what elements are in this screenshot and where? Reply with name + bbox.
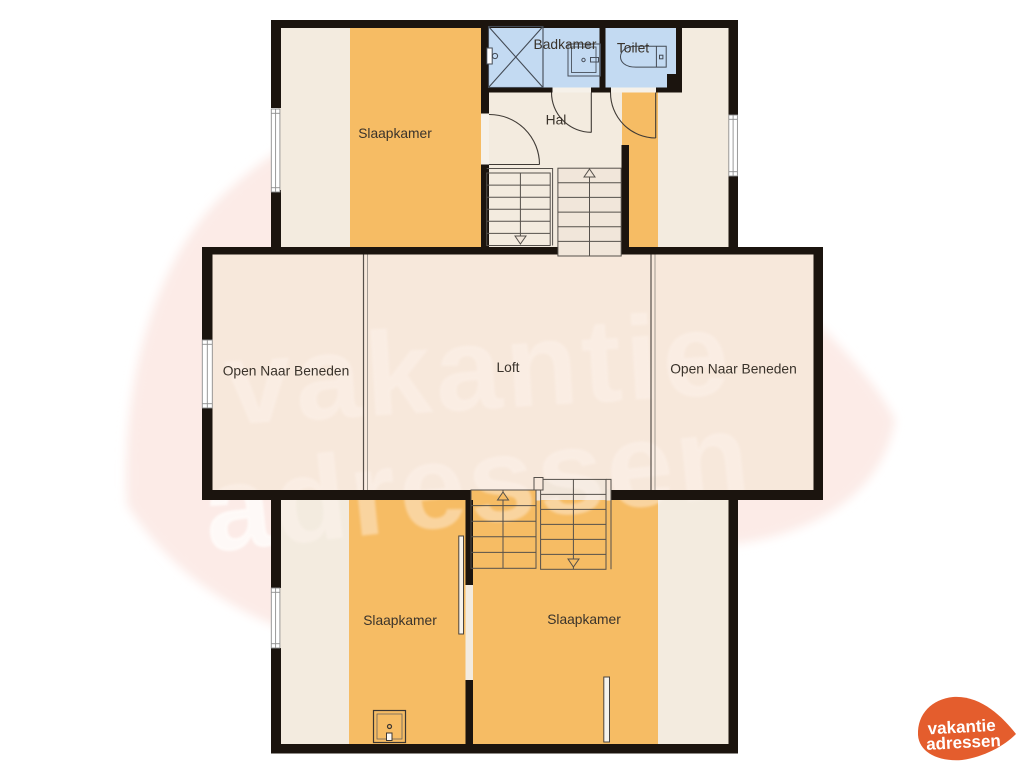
svg-text:Loft: Loft xyxy=(496,360,519,375)
svg-text:Slaapkamer: Slaapkamer xyxy=(358,126,432,141)
svg-text:Badkamer: Badkamer xyxy=(534,37,597,52)
svg-text:Open Naar Beneden: Open Naar Beneden xyxy=(223,364,350,379)
svg-text:adressen: adressen xyxy=(926,731,1002,754)
svg-text:Slaapkamer: Slaapkamer xyxy=(363,613,437,628)
svg-text:Slaapkamer: Slaapkamer xyxy=(547,612,621,627)
svg-text:Toilet: Toilet xyxy=(617,41,649,56)
svg-text:Open Naar Beneden: Open Naar Beneden xyxy=(670,362,797,377)
svg-text:Hal: Hal xyxy=(546,113,567,128)
